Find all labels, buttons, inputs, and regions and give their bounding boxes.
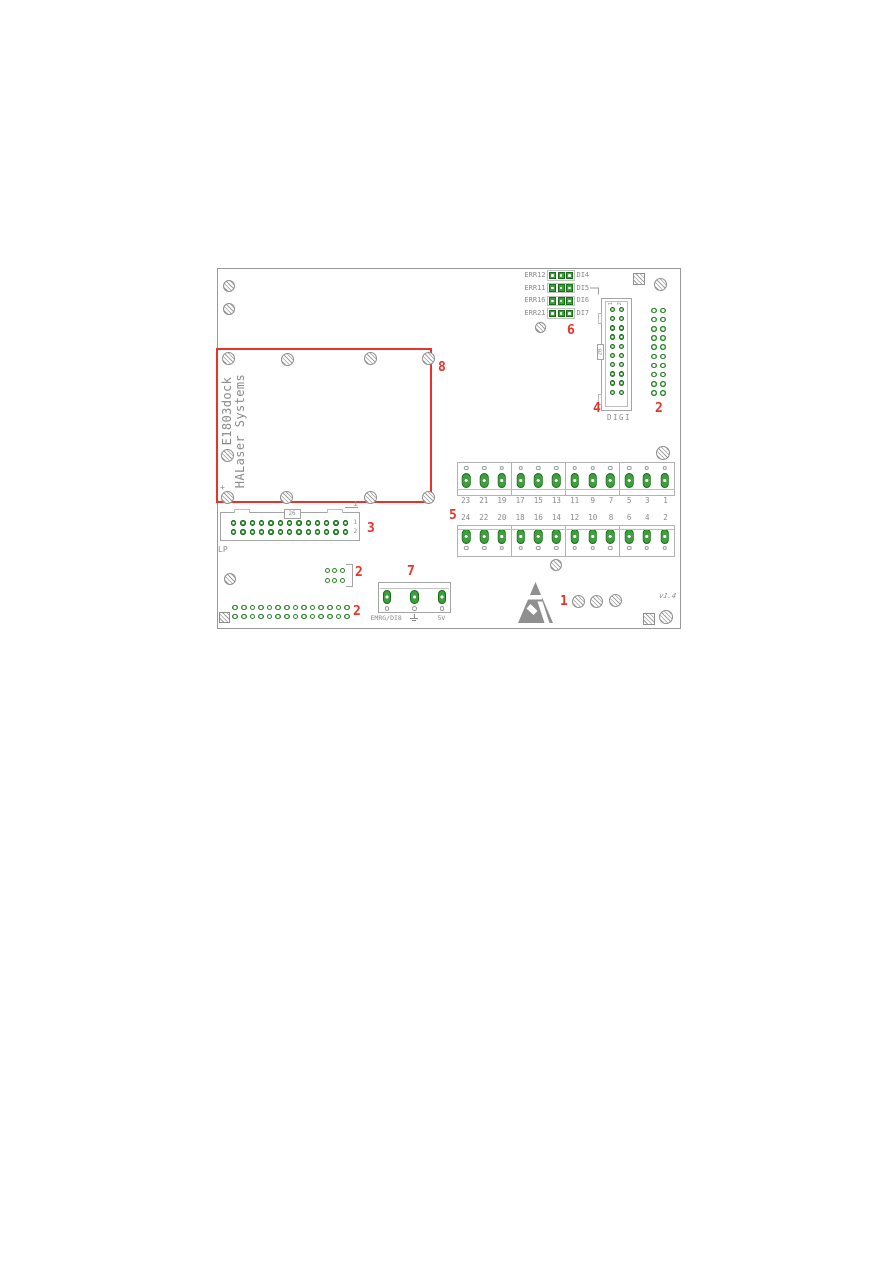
terminal-pin-number: 10	[584, 514, 602, 522]
module-mounting-hole	[364, 352, 377, 365]
mounting-hole	[659, 610, 673, 624]
mounting-hole	[654, 278, 667, 291]
terminal-wire-hole	[627, 466, 632, 471]
mounting-hole	[223, 303, 235, 315]
emrg-right-label: 5V	[438, 615, 446, 622]
board-version: v1.4	[658, 593, 676, 600]
lp-pad	[287, 529, 292, 534]
esd-warning-triangle-icon	[518, 582, 553, 623]
terminal-position	[511, 526, 530, 556]
bottom-header-pad	[327, 605, 333, 611]
terminal-wire-hole	[464, 546, 469, 551]
lp-pad	[250, 529, 255, 534]
jumper-pad	[558, 272, 565, 280]
digi-pad	[610, 371, 616, 377]
digi-pin-count-badge: 20	[597, 344, 604, 360]
bottom-header-pad	[232, 605, 238, 611]
bottom-header-pad	[258, 614, 264, 620]
emrg-terminal-pad	[383, 590, 392, 605]
bottom-header-pad	[344, 605, 350, 611]
terminal-wire-hole	[627, 546, 632, 551]
emrg-left-label: EMRG/DI8	[371, 615, 402, 622]
module-mounting-hole	[364, 491, 377, 504]
jumper-pad	[549, 310, 556, 318]
bottom-header-pad	[336, 605, 342, 611]
mounting-hole	[572, 595, 585, 608]
module-mounting-hole	[280, 491, 293, 504]
terminal-position	[458, 463, 476, 495]
breakout-pad	[651, 381, 657, 387]
bottom-header-pad	[344, 614, 350, 620]
terminal-pin-number: 2	[656, 514, 674, 522]
terminal-odd-numbers: 2321191715131197531	[457, 497, 675, 505]
jumper-right-label: DI6	[577, 297, 590, 304]
callout-2-aux-header: 2	[355, 566, 363, 579]
breakout-pad	[660, 381, 666, 387]
mounting-hole	[223, 280, 235, 292]
module-title: E1803dock	[221, 377, 233, 446]
mounting-hole	[224, 573, 236, 585]
lp-pad	[278, 520, 283, 525]
lp-top-notch	[234, 509, 250, 514]
emrg-wire-hole	[440, 606, 445, 611]
jumper-pad	[558, 284, 565, 292]
digi-pad	[619, 334, 625, 340]
callout-8: 8	[438, 361, 446, 374]
jumper-pad	[558, 310, 565, 318]
terminal-position	[547, 526, 565, 556]
terminal-pin-number: 7	[602, 497, 620, 505]
aux-header-pad	[340, 578, 345, 583]
terminal-pad	[498, 473, 507, 488]
digi-column-label: 2	[617, 302, 623, 305]
bottom-header-pad	[275, 614, 281, 620]
digi-pad	[619, 371, 625, 377]
digi-side-tab	[598, 313, 602, 324]
terminal-position	[656, 463, 674, 495]
terminal-pin-number: 17	[511, 497, 529, 505]
jumper-right-label: DI4	[577, 272, 590, 279]
terminal-pad	[480, 529, 489, 544]
aux-header-pad	[340, 568, 345, 573]
breakout-pad	[660, 363, 666, 369]
digi-pad	[610, 344, 616, 350]
terminal-pin-number: 20	[493, 514, 511, 522]
module-outline-highlight	[216, 348, 432, 503]
terminal-pin-number: 12	[566, 514, 584, 522]
bottom-header-pad	[293, 605, 299, 611]
fiducial-pad	[219, 612, 230, 623]
bottom-header-pad	[284, 614, 290, 620]
breakout-pad	[660, 326, 666, 332]
jumper-pad-group	[547, 283, 575, 294]
terminal-position	[511, 463, 530, 495]
terminal-position	[619, 526, 638, 556]
terminal-position	[530, 463, 548, 495]
mounting-hole	[550, 559, 562, 571]
pcb-board-outline: E1803dock HALaser Systems + 8 ERR12DI4ER…	[217, 268, 681, 629]
digi-pad	[610, 380, 616, 386]
module-mounting-hole	[222, 352, 235, 365]
lp-pin-count-badge: 26	[284, 509, 301, 519]
digi-pad	[610, 390, 616, 396]
bottom-header-pad	[267, 605, 273, 611]
di5-pointer-line	[590, 287, 599, 294]
terminal-pin-number: 19	[493, 497, 511, 505]
lp-pad	[240, 520, 245, 525]
digi-pad	[610, 325, 616, 331]
terminal-position	[475, 463, 493, 495]
breakout-pad	[651, 372, 657, 378]
terminal-pad	[588, 529, 597, 544]
bottom-header-pad	[318, 605, 324, 611]
jumper-pad	[549, 284, 556, 292]
callout-4: 4	[593, 402, 601, 415]
breakout-pad	[660, 354, 666, 360]
terminal-wire-hole	[554, 466, 559, 471]
terminal-wire-hole	[482, 466, 487, 471]
module-mounting-hole	[422, 491, 435, 504]
lp-pad	[306, 529, 311, 534]
callout-6: 6	[567, 324, 575, 337]
callout-2-bottom-header: 2	[353, 605, 361, 618]
module-mounting-hole	[422, 352, 435, 365]
lp-pad	[315, 520, 320, 525]
bottom-header-pad	[250, 614, 256, 620]
terminal-pad	[534, 473, 543, 488]
bottom-header-pad	[301, 605, 307, 611]
terminal-pad	[516, 529, 525, 544]
terminal-pad	[571, 473, 580, 488]
lp-label: LP	[218, 546, 228, 554]
callout-3: 3	[367, 522, 375, 535]
lp-pad	[296, 520, 301, 525]
terminal-wire-hole	[662, 466, 667, 471]
terminal-pad	[552, 529, 561, 544]
terminal-wire-hole	[464, 466, 469, 471]
terminal-position	[656, 526, 674, 556]
terminal-position	[547, 463, 565, 495]
terminal-pad	[462, 473, 471, 488]
mounting-hole	[535, 322, 546, 333]
terminal-position	[530, 526, 548, 556]
lp-pad	[343, 529, 348, 534]
jumper-row: ERR16DI6	[521, 295, 589, 306]
lp-pad	[306, 520, 311, 525]
terminal-pin-number: 11	[566, 497, 584, 505]
terminal-pin-number: 22	[475, 514, 493, 522]
breakout-pad	[651, 363, 657, 369]
bottom-header-pad	[318, 614, 324, 620]
terminal-pad	[480, 473, 489, 488]
jumper-pad	[549, 297, 556, 305]
terminal-pin-number: 1	[656, 497, 674, 505]
digi-label: DIGI	[607, 414, 631, 422]
terminal-wire-hole	[518, 546, 523, 551]
fiducial-pad	[633, 273, 645, 285]
terminal-pin-number: 15	[529, 497, 547, 505]
terminal-even-numbers: 24222018161412108642	[457, 514, 675, 522]
terminal-pad	[660, 473, 669, 488]
breakout-pad	[651, 326, 657, 332]
terminal-pad	[606, 529, 615, 544]
terminal-position	[565, 463, 584, 495]
terminal-pin-number: 16	[529, 514, 547, 522]
terminal-wire-hole	[573, 546, 578, 551]
digi-pad	[619, 380, 625, 386]
bottom-header-pad	[241, 614, 247, 620]
jumper-pad	[558, 297, 565, 305]
digi-pad	[619, 344, 625, 350]
lp-pad	[315, 529, 320, 534]
terminal-wire-hole	[608, 466, 613, 471]
lp-pin1-line	[345, 507, 358, 508]
lp-pad	[268, 520, 273, 525]
breakout-pad	[651, 344, 657, 350]
terminal-position	[638, 463, 656, 495]
terminal-pad	[643, 473, 652, 488]
lp-pin-count: 26	[288, 510, 295, 517]
jumper-right-label: DI7	[577, 310, 590, 317]
terminal-position	[584, 526, 602, 556]
mounting-hole	[609, 594, 622, 607]
mounting-hole	[590, 595, 603, 608]
emrg-wire-hole	[385, 606, 390, 611]
emrg-terminal-pad	[410, 590, 419, 605]
terminal-position	[584, 463, 602, 495]
jumper-row: ERR12DI4	[521, 270, 589, 281]
aux-header-pad	[332, 568, 337, 573]
callout-7: 7	[407, 565, 415, 578]
callout-2-right-grid: 2	[655, 402, 663, 415]
terminal-wire-hole	[500, 466, 505, 471]
terminal-wire-hole	[500, 546, 505, 551]
terminal-pin-number: 8	[602, 514, 620, 522]
jumper-row: ERR11DI5	[521, 283, 599, 294]
terminal-pad	[534, 529, 543, 544]
terminal-wire-hole	[536, 466, 541, 471]
breakout-pad	[651, 317, 657, 323]
terminal-pin-number: 21	[475, 497, 493, 505]
terminal-wire-hole	[662, 546, 667, 551]
jumper-left-label: ERR16	[521, 297, 546, 304]
terminal-pin-number: 3	[638, 497, 656, 505]
bottom-header-pad	[267, 614, 273, 620]
jumper-right-label: DI5	[577, 285, 590, 292]
lp-row-label: 2	[354, 529, 358, 535]
jumper-pad	[566, 297, 573, 305]
digi-pad	[619, 390, 625, 396]
terminal-wire-hole	[518, 466, 523, 471]
terminal-pin-number: 24	[457, 514, 475, 522]
emrg-wire-hole	[412, 606, 417, 611]
terminal-pin-number: 9	[584, 497, 602, 505]
jumper-pad	[566, 310, 573, 318]
terminal-clamp-line	[458, 489, 674, 490]
terminal-wire-hole	[482, 546, 487, 551]
breakout-pad	[651, 390, 657, 396]
document-page: E1803dock HALaser Systems + 8 ERR12DI4ER…	[0, 0, 893, 1263]
fiducial-pad	[643, 613, 655, 625]
jumper-left-label: ERR12	[521, 272, 546, 279]
terminal-position	[493, 463, 511, 495]
module-mounting-hole	[281, 353, 294, 366]
lp-pad	[296, 529, 301, 534]
terminal-pin-number: 14	[547, 514, 565, 522]
digi-column-label: 1	[608, 302, 614, 305]
callout-1: 1	[560, 595, 568, 608]
lp-pad	[250, 520, 255, 525]
bottom-header-pad	[258, 605, 264, 611]
emrg-terminal-pad	[438, 590, 447, 605]
breakout-pad	[660, 317, 666, 323]
terminal-wire-hole	[554, 546, 559, 551]
lp-top-notch	[327, 509, 343, 514]
bottom-header-pad	[310, 605, 316, 611]
module-subtitle: HALaser Systems	[234, 374, 246, 488]
emrg-terminal-line	[380, 588, 450, 589]
lp-pad	[287, 520, 292, 525]
digi-pad	[619, 325, 625, 331]
bottom-header-pad	[327, 614, 333, 620]
terminal-pin-number: 23	[457, 497, 475, 505]
bottom-header-pad	[275, 605, 281, 611]
lp-pad	[259, 529, 264, 534]
terminal-pin-number: 4	[638, 514, 656, 522]
terminal-wire-hole	[536, 546, 541, 551]
terminal-wire-hole	[573, 466, 578, 471]
terminal-pad	[516, 473, 525, 488]
terminal-wire-hole	[645, 546, 650, 551]
terminal-position	[458, 526, 476, 556]
terminal-position	[638, 526, 656, 556]
bottom-header-pad	[232, 614, 238, 620]
terminal-wire-hole	[590, 466, 595, 471]
terminal-pin-number: 13	[547, 497, 565, 505]
breakout-pad	[651, 354, 657, 360]
terminal-position	[602, 526, 620, 556]
bottom-header-pad	[310, 614, 316, 620]
jumper-left-label: ERR21	[521, 310, 546, 317]
jumper-pad-group	[547, 270, 575, 281]
aux-header-bracket	[346, 564, 353, 587]
terminal-position	[565, 526, 584, 556]
breakout-pad	[660, 344, 666, 350]
lp-pad	[268, 529, 273, 534]
module-mounting-hole	[221, 491, 234, 504]
jumper-pad	[566, 272, 573, 280]
terminal-pad	[571, 529, 580, 544]
terminal-pin-number: 18	[511, 514, 529, 522]
bottom-header-pad	[336, 614, 342, 620]
bottom-header-pad	[293, 614, 299, 620]
digi-pad	[610, 334, 616, 340]
digi-connector-inner	[605, 301, 629, 407]
terminal-block-top	[457, 462, 675, 496]
aux-header-pad	[332, 578, 337, 583]
lp-pad	[343, 520, 348, 525]
breakout-pad	[660, 335, 666, 341]
terminal-pad	[606, 473, 615, 488]
jumper-left-label: ERR11	[521, 285, 546, 292]
terminal-pad	[625, 473, 634, 488]
jumper-pad	[566, 284, 573, 292]
terminal-pad	[588, 473, 597, 488]
terminal-position	[602, 463, 620, 495]
polarity-mark: +	[220, 484, 225, 492]
bottom-header-pad	[250, 605, 256, 611]
ground-symbol-icon	[409, 614, 419, 623]
lp-pad	[278, 529, 283, 534]
lp-pad	[240, 529, 245, 534]
terminal-wire-hole	[645, 466, 650, 471]
bottom-header-pad	[284, 605, 290, 611]
lp-pad	[333, 529, 338, 534]
breakout-pad	[651, 308, 657, 314]
terminal-position	[619, 463, 638, 495]
lp-pad	[333, 520, 338, 525]
breakout-pad	[651, 335, 657, 341]
terminal-wire-hole	[608, 546, 613, 551]
aux-header-pad	[325, 568, 330, 573]
terminal-wire-hole	[590, 546, 595, 551]
breakout-pad	[660, 372, 666, 378]
digi-pin-count: 20	[598, 348, 604, 355]
aux-header-pad	[325, 578, 330, 583]
terminal-position	[493, 526, 511, 556]
lp-row-label: 1	[354, 520, 358, 526]
terminal-pad	[498, 529, 507, 544]
breakout-pad	[660, 308, 666, 314]
jumper-pad-group	[547, 308, 575, 319]
jumper-row: ERR21DI7	[521, 308, 589, 319]
terminal-pad	[462, 529, 471, 544]
lp-pad	[259, 520, 264, 525]
terminal-position	[475, 526, 493, 556]
terminal-pin-number: 5	[620, 497, 638, 505]
bottom-header-pad	[301, 614, 307, 620]
terminal-block-bottom	[457, 525, 675, 557]
bottom-header-pad	[241, 605, 247, 611]
breakout-pad	[660, 390, 666, 396]
terminal-pin-number: 6	[620, 514, 638, 522]
mounting-hole	[656, 446, 670, 460]
terminal-pad	[660, 529, 669, 544]
terminal-pad	[643, 529, 652, 544]
terminal-pad	[552, 473, 561, 488]
terminal-clamp-line	[458, 529, 674, 530]
terminal-pad	[625, 529, 634, 544]
callout-5: 5	[449, 509, 457, 522]
jumper-pad-group	[547, 296, 575, 307]
jumper-pad	[549, 272, 556, 280]
